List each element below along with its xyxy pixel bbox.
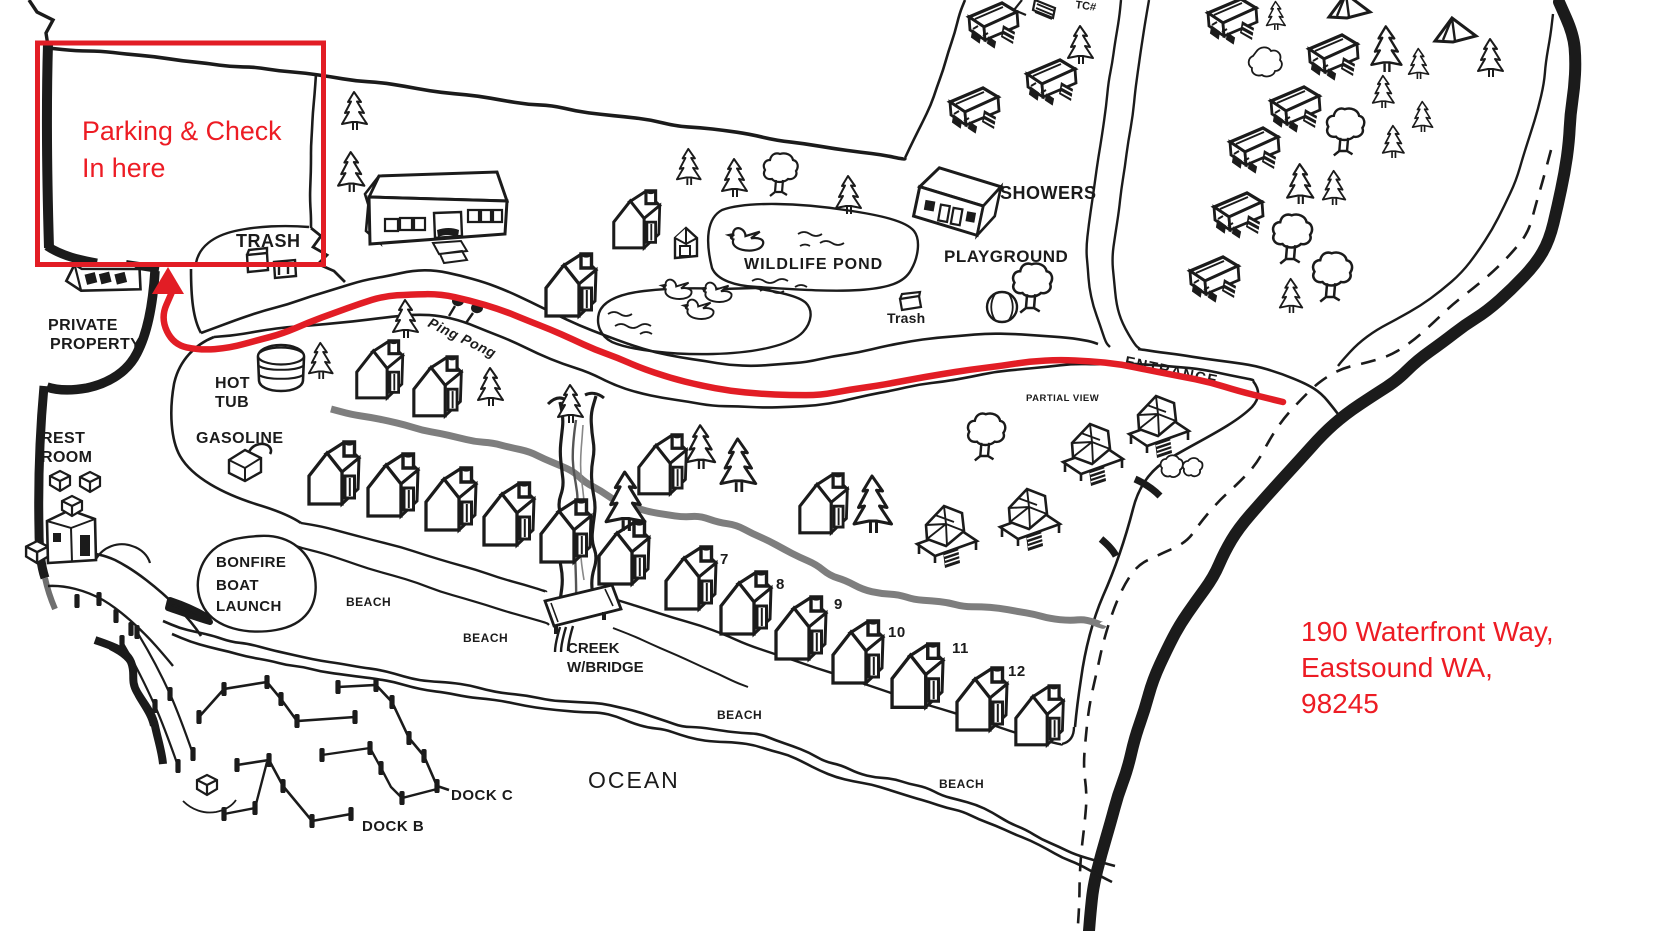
svg-text:BEACH: BEACH xyxy=(939,777,984,791)
svg-text:OCEAN: OCEAN xyxy=(588,767,680,793)
svg-text:TRASH: TRASH xyxy=(236,231,301,251)
svg-text:7: 7 xyxy=(720,551,729,568)
svg-text:12: 12 xyxy=(1008,663,1026,680)
svg-text:BEACH: BEACH xyxy=(463,631,508,645)
svg-text:WILDLIFE POND: WILDLIFE POND xyxy=(744,256,883,273)
svg-text:9: 9 xyxy=(834,596,843,613)
svg-text:BEACH: BEACH xyxy=(346,595,391,609)
svg-text:PARTIAL VIEW: PARTIAL VIEW xyxy=(1026,393,1099,404)
svg-text:DOCK C: DOCK C xyxy=(451,787,513,804)
svg-text:10: 10 xyxy=(888,624,906,641)
svg-text:SHOWERS: SHOWERS xyxy=(1000,183,1097,203)
svg-text:DOCK B: DOCK B xyxy=(362,818,424,835)
svg-text:GASOLINE: GASOLINE xyxy=(196,430,284,447)
svg-text:11: 11 xyxy=(952,640,969,657)
svg-text:8: 8 xyxy=(776,576,785,593)
svg-text:Trash: Trash xyxy=(887,310,925,326)
svg-text:BEACH: BEACH xyxy=(717,708,762,722)
svg-text:PLAYGROUND: PLAYGROUND xyxy=(944,247,1068,266)
